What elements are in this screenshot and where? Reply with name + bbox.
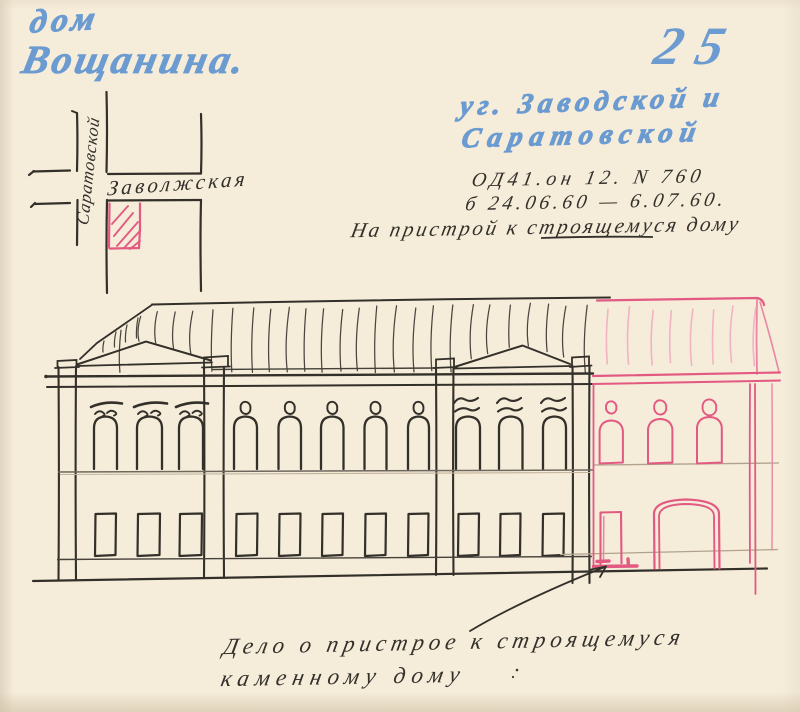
svg-text:Вощанина.: Вощанина. <box>17 37 251 82</box>
svg-text:Саратовской: Саратовской <box>459 117 705 154</box>
svg-text:каменному дому: каменному дому <box>219 662 469 692</box>
svg-text:б 24.06.60 — 6.07.60.: б 24.06.60 — 6.07.60. <box>463 189 729 215</box>
svg-text:25: 25 <box>648 16 746 76</box>
svg-text:ОД41.он 12. N 760: ОД41.он 12. N 760 <box>470 165 707 191</box>
svg-text:дом: дом <box>27 0 103 40</box>
